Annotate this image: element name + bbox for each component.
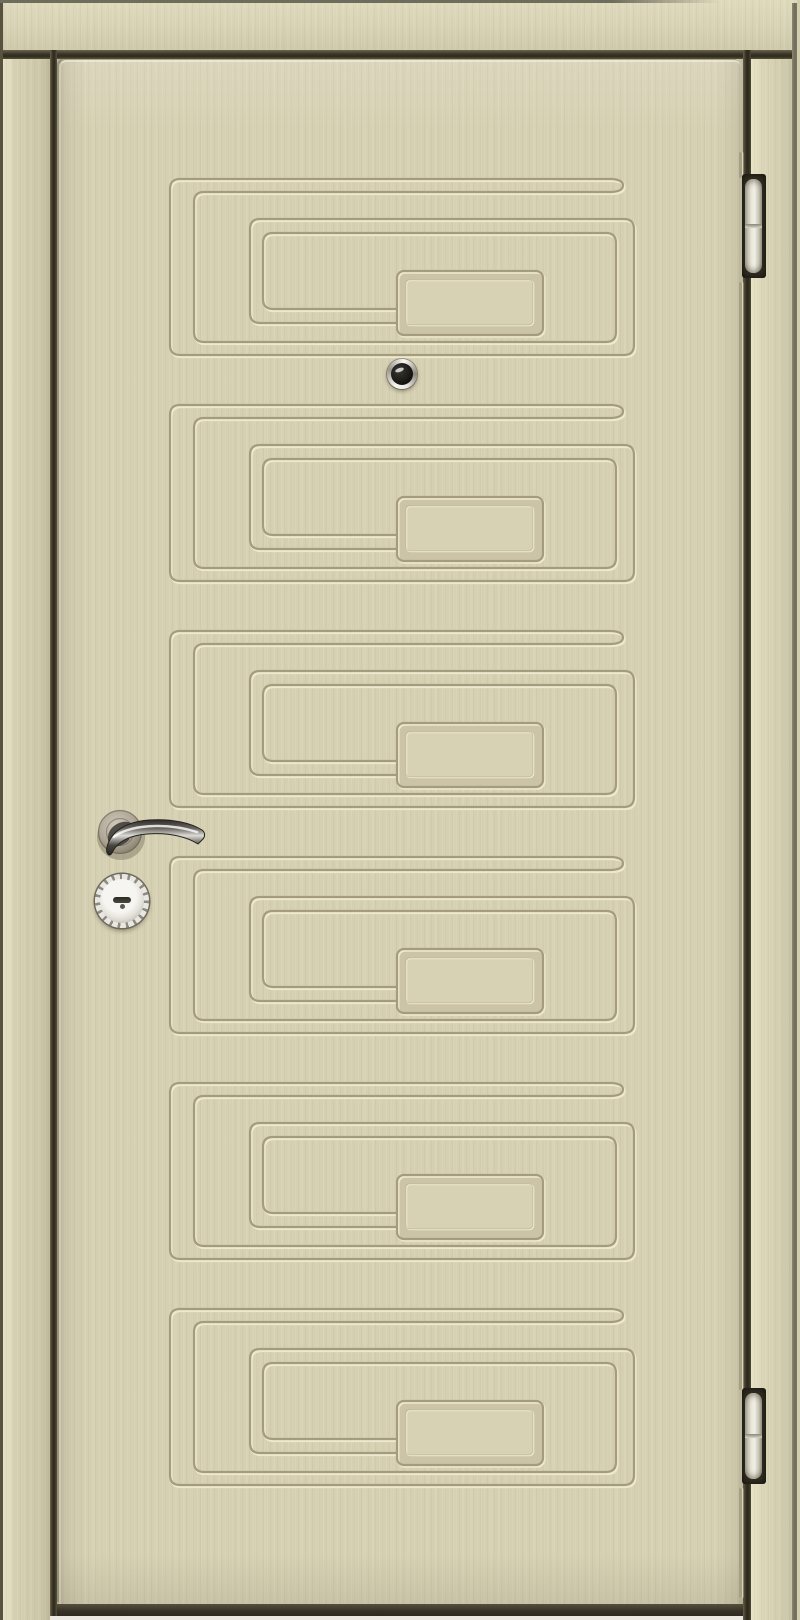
door-panel-greek-key	[163, 1076, 641, 1266]
door-hinge	[742, 174, 766, 278]
peephole-deadbolt-keyhole	[387, 359, 417, 389]
panel-embossed-pattern	[163, 172, 641, 362]
hinge-knuckle-seam	[745, 1434, 762, 1438]
door-right-edge-shadow-line	[739, 282, 742, 1390]
panel-center-raised-rect	[397, 1401, 544, 1467]
panel-embossed-pattern	[163, 1302, 641, 1492]
frame-lintel	[0, 0, 800, 50]
frame-left-jamb	[3, 59, 50, 1620]
wood-grain-texture	[0, 0, 800, 50]
frame-right-jamb	[751, 59, 792, 1620]
door-bottom-shadow	[57, 1604, 743, 1616]
door-panel-greek-key	[163, 624, 641, 814]
door-leaf	[57, 59, 743, 1604]
hinge-barrel	[745, 179, 762, 273]
frame-top-reveal-gap	[0, 50, 800, 59]
wood-grain-texture	[751, 59, 792, 1620]
panel-center-raised-rect	[397, 723, 544, 789]
door-panel-greek-key	[163, 398, 641, 588]
door-hinge	[742, 1388, 766, 1484]
door-panel-greek-key	[163, 172, 641, 362]
panel-center-raised-rect	[397, 271, 544, 337]
panel-center-raised-rect	[397, 497, 544, 563]
door-photo-scene	[0, 0, 800, 1620]
door-right-edge-shadow-line	[739, 1488, 742, 1598]
door-frame-gap-right	[743, 50, 751, 1620]
cylinder-keyway-slot	[113, 897, 131, 903]
lock-cylinder-escutcheon	[95, 874, 149, 928]
panel-embossed-pattern	[163, 624, 641, 814]
hinge-knuckle-seam	[745, 224, 762, 228]
frame-top-edge-line	[0, 0, 720, 3]
panel-center-raised-rect	[397, 1175, 544, 1241]
door-frame-gap-left	[50, 50, 57, 1616]
door-right-edge-shadow-line	[739, 152, 742, 178]
floor-strip	[50, 1616, 743, 1620]
wood-grain-texture	[3, 59, 50, 1620]
door-panel-greek-key	[163, 850, 641, 1040]
hinge-barrel	[745, 1393, 762, 1479]
panel-embossed-pattern	[163, 1076, 641, 1266]
panel-embossed-pattern	[163, 398, 641, 588]
panel-embossed-pattern	[163, 850, 641, 1040]
door-panel-greek-key	[163, 1302, 641, 1492]
panel-center-raised-rect	[397, 949, 544, 1015]
frame-left-edge-line	[0, 3, 3, 1620]
